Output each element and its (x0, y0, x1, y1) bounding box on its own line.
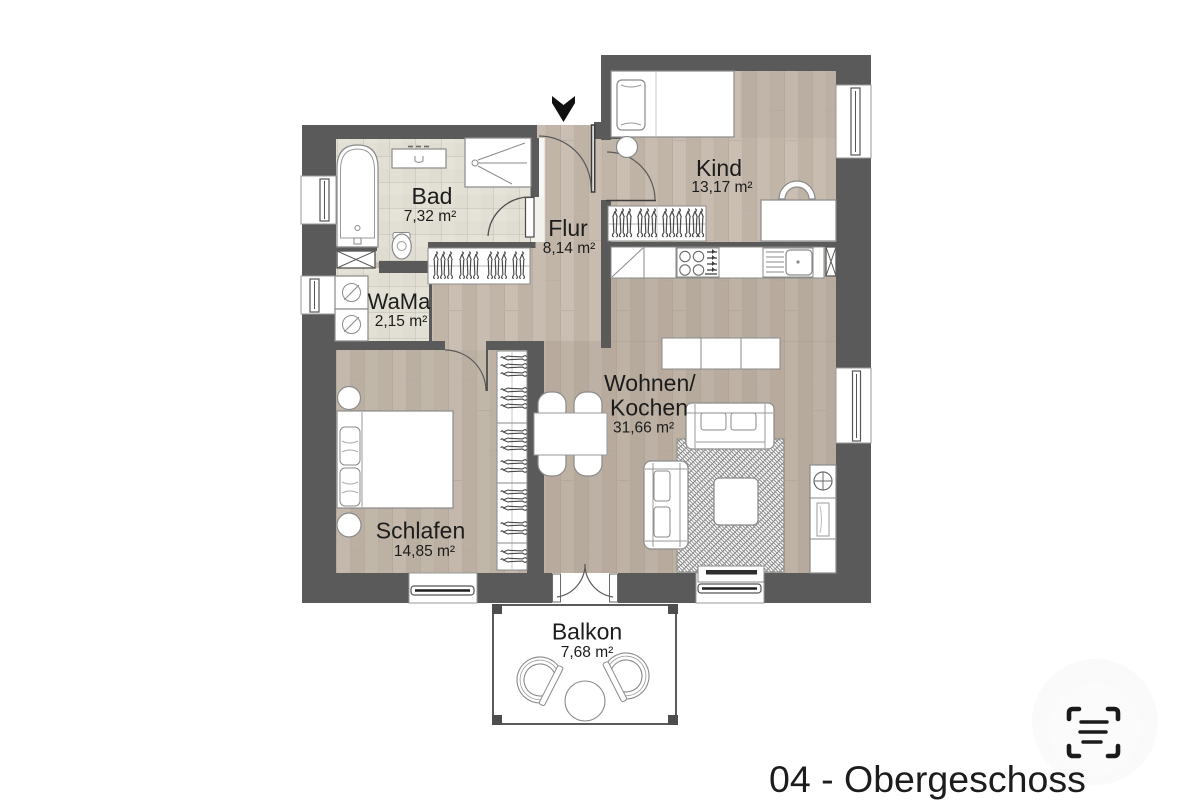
svg-text:Flur: Flur (548, 215, 588, 241)
svg-text:7,68 m²: 7,68 m² (561, 644, 614, 661)
svg-text:Bad: Bad (412, 183, 453, 209)
svg-text:Kind: Kind (696, 155, 742, 181)
svg-text:2,15 m²: 2,15 m² (375, 313, 428, 330)
svg-text:13,17 m²: 13,17 m² (691, 179, 752, 196)
svg-text:WaMa: WaMa (368, 289, 432, 314)
svg-text:Wohnen/: Wohnen/ (604, 370, 696, 396)
svg-text:8,14 m²: 8,14 m² (543, 240, 596, 257)
svg-text:7,32 m²: 7,32 m² (404, 208, 457, 225)
svg-text:Balkon: Balkon (552, 619, 622, 645)
svg-text:04 - Obergeschoss: 04 - Obergeschoss (769, 758, 1086, 800)
svg-text:Schlafen: Schlafen (376, 518, 466, 544)
svg-text:Kochen: Kochen (610, 395, 688, 421)
svg-text:14,85 m²: 14,85 m² (394, 543, 455, 560)
svg-text:31,66 m²: 31,66 m² (613, 420, 674, 437)
